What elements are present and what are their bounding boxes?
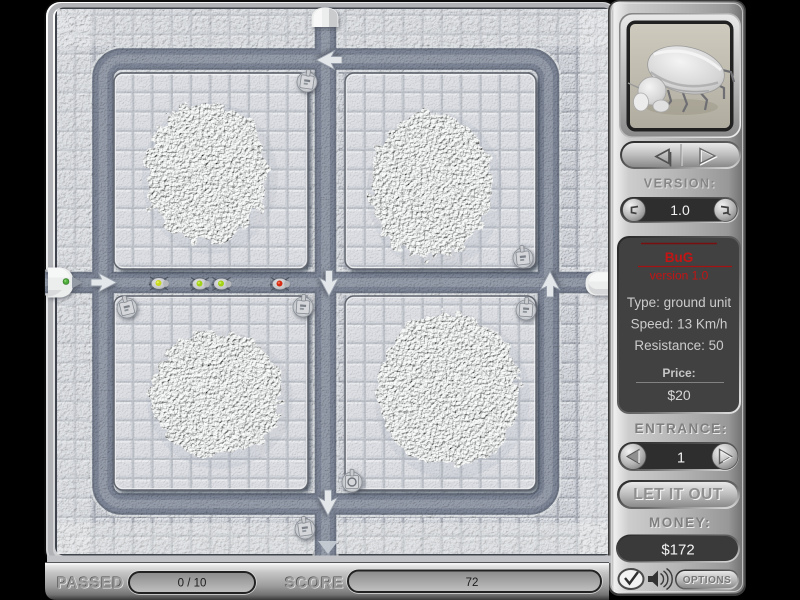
svg-text:0 / 10: 0 / 10 bbox=[178, 578, 207, 590]
svg-text:ENTRANCE:: ENTRANCE: bbox=[635, 421, 728, 436]
svg-text:1: 1 bbox=[677, 451, 685, 467]
svg-text:72: 72 bbox=[466, 577, 479, 589]
svg-text:$20: $20 bbox=[667, 387, 691, 403]
svg-text:BuG: BuG bbox=[665, 250, 694, 265]
svg-text:LET IT OUT: LET IT OUT bbox=[633, 486, 722, 503]
svg-text:Resistance: 50: Resistance: 50 bbox=[634, 338, 723, 353]
svg-text:PASSED: PASSED bbox=[57, 575, 124, 592]
svg-text:Price:: Price: bbox=[662, 366, 695, 380]
svg-text:VERSION:: VERSION: bbox=[644, 177, 716, 191]
svg-text:SCORE: SCORE bbox=[285, 575, 344, 592]
svg-text:MONEY:: MONEY: bbox=[649, 515, 711, 530]
svg-text:OPTIONS: OPTIONS bbox=[683, 575, 732, 586]
svg-text:Type: ground unit: Type: ground unit bbox=[627, 295, 732, 310]
svg-text:Speed: 13 Km/h: Speed: 13 Km/h bbox=[631, 317, 728, 332]
svg-text:1.0: 1.0 bbox=[670, 202, 690, 218]
svg-text:version 1.0: version 1.0 bbox=[650, 269, 709, 283]
svg-text:$172: $172 bbox=[661, 542, 694, 559]
